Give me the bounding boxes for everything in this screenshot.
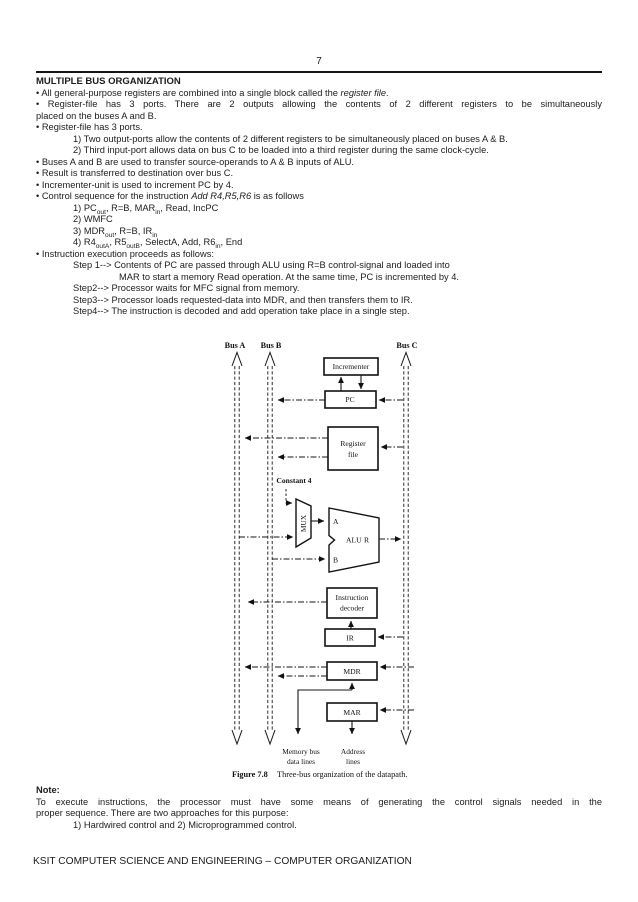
address-label-line1: Address xyxy=(341,747,365,756)
alu-input-a-label: A xyxy=(333,517,339,526)
svg-text:MAR: MAR xyxy=(343,708,361,717)
note-item: 1) Hardwired control and 2) Microprogram… xyxy=(36,820,602,832)
register-file-box xyxy=(328,427,378,470)
exec-step3: Step3--> Processor loads requested-data … xyxy=(36,295,602,307)
svg-text:Register: Register xyxy=(340,439,366,448)
bus-c-bottom-arrow xyxy=(401,730,411,744)
control-seq-step1: 1) PCout, R=B, MARin, Read, IncPC xyxy=(36,203,602,215)
constant4-label: Constant 4 xyxy=(276,476,311,485)
bus-a: Bus A xyxy=(225,341,246,744)
bus-c: Bus C xyxy=(396,341,417,744)
constant4-to-mux-line xyxy=(286,489,292,503)
bus-b: Bus B xyxy=(261,341,282,744)
svg-text:Bus B: Bus B xyxy=(261,341,282,350)
bus-c-top-arrow xyxy=(401,353,411,367)
bullet-buses-ab: • Buses A and B are used to transfer sou… xyxy=(36,157,602,169)
bullet-control-sequence: • Control sequence for the instruction A… xyxy=(36,191,602,203)
bullet-ports-line2: placed on the buses A and B. xyxy=(36,111,602,123)
membus-label-line2: data lines xyxy=(287,757,315,766)
address-label-line2: lines xyxy=(346,757,360,766)
bus-a-bottom-arrow xyxy=(232,730,242,744)
note-body-line2: proper sequence. There are two approache… xyxy=(36,808,602,820)
bus-b-bottom-arrow xyxy=(265,730,275,744)
bullet-result-busc: • Result is transferred to destination o… xyxy=(36,168,602,180)
svg-text:Bus C: Bus C xyxy=(396,341,417,350)
figure-7-8-diagram: Bus A Bus B Bus C Incrementer PC xyxy=(0,330,638,786)
section-title: MULTIPLE BUS ORGANIZATION xyxy=(36,76,602,88)
exec-step2: Step2--> Processor waits for MFC signal … xyxy=(36,283,602,295)
exec-step1-line1: Step 1--> Contents of PC are passed thro… xyxy=(36,260,602,272)
svg-text:PC: PC xyxy=(345,395,354,404)
membus-label-line1: Memory bus xyxy=(282,747,320,756)
separator-rule xyxy=(36,71,602,73)
alu-input-b-label: B xyxy=(333,556,338,565)
bus-b-top-arrow xyxy=(265,353,275,367)
svg-text:Bus A: Bus A xyxy=(225,341,246,350)
bullet-ports-line1: • Register-file has 3 ports. There are 2… xyxy=(36,99,602,111)
figure-caption-text: Three-bus organization of the datapath. xyxy=(277,770,407,779)
bullet-register-file: • All general-purpose registers are comb… xyxy=(36,88,602,100)
note-label: Note: xyxy=(36,785,602,797)
exec-step1-line2: MAR to start a memory Read operation. At… xyxy=(36,272,602,284)
control-seq-step2: 2) WMFC xyxy=(36,214,602,226)
svg-text:Instruction: Instruction xyxy=(336,593,369,602)
notes-text-block: MULTIPLE BUS ORGANIZATION • All general-… xyxy=(36,76,602,318)
bullet-three-ports: • Register-file has 3 ports. xyxy=(36,122,602,134)
bullet-incrementer: • Incrementer-unit is used to increment … xyxy=(36,180,602,192)
svg-text:decoder: decoder xyxy=(340,604,365,613)
svg-text:IR: IR xyxy=(346,634,355,643)
mux-label: MUX xyxy=(299,514,308,532)
figure-caption-label: Figure 7.8 xyxy=(232,770,268,779)
bullet-execution: • Instruction execution proceeds as foll… xyxy=(36,249,602,261)
page-footer: KSIT COMPUTER SCIENCE AND ENGINEERING – … xyxy=(33,856,412,868)
alu-label: ALU xyxy=(346,536,362,545)
subitem-input-port: 2) Third input-port allows data on bus C… xyxy=(36,145,602,157)
exec-step4: Step4--> The instruction is decoded and … xyxy=(36,306,602,318)
subitem-output-ports: 1) Two output-ports allow the contents o… xyxy=(36,134,602,146)
note-body-line1: To execute instructions, the processor m… xyxy=(36,797,602,809)
note-block: Note: To execute instructions, the proce… xyxy=(36,785,602,831)
page-number: 7 xyxy=(0,56,638,67)
svg-text:file: file xyxy=(348,450,359,459)
svg-text:MDR: MDR xyxy=(343,667,361,676)
control-seq-step3: 3) MDRout, R=B, IRin xyxy=(36,226,602,238)
bus-a-top-arrow xyxy=(232,353,242,367)
svg-text:Incrementer: Incrementer xyxy=(333,362,370,371)
document-page: 7 MULTIPLE BUS ORGANIZATION • All genera… xyxy=(0,0,638,902)
control-seq-step4: 4) R4outA, R5outB, SelectA, Add, R6in, E… xyxy=(36,237,602,249)
